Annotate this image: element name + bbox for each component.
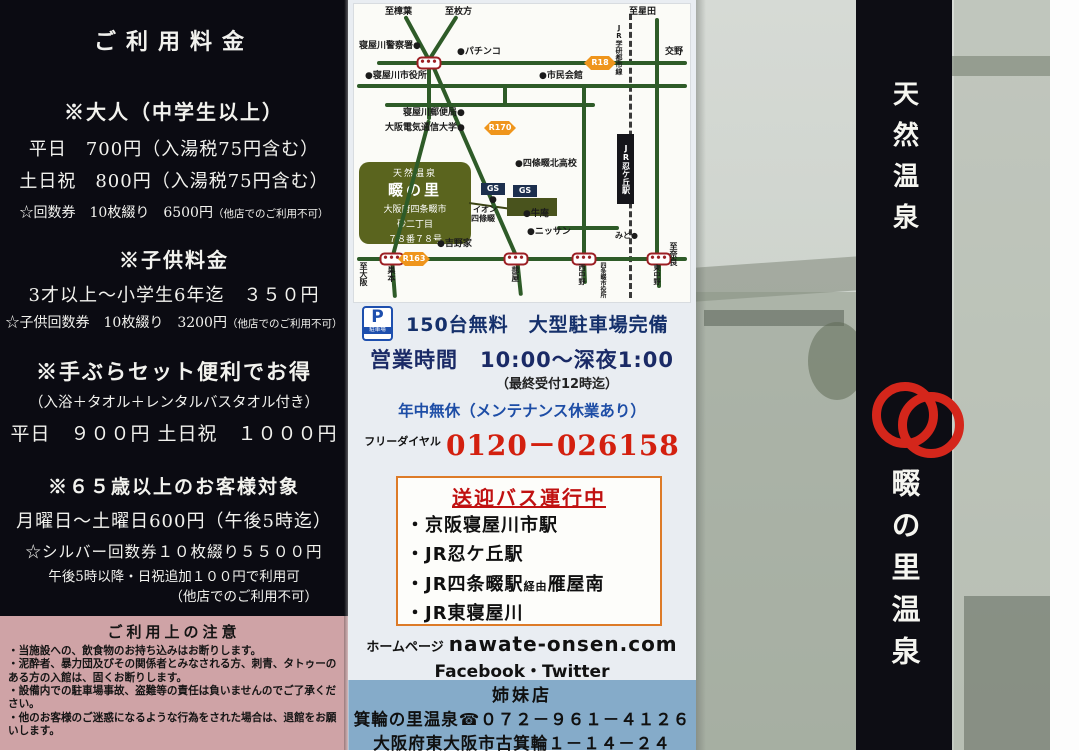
map-label: ● (489, 196, 497, 205)
map-label: 蔀屋 (511, 266, 519, 282)
map-label: ●牛庵 (523, 210, 549, 219)
adult-heading: ※大人（中学生以上） (0, 96, 348, 125)
shuttle-title: 送迎バス運行中 (406, 482, 652, 511)
homepage-url: nawate-onsen.com (449, 632, 678, 656)
map-landmark-block: GS (481, 183, 505, 195)
shuttle-bus-box: 送迎バス運行中 ・京阪寝屋川市駅 ・JR忍ケ丘駅 ・JR四条畷駅経由雁屋南 ・J… (396, 476, 662, 626)
scan-edge (1050, 0, 1079, 750)
map-canvas: 天然温泉 畷の里 大阪府四条畷市 砂二丁目 ７８番７８号 R18R170R163… (357, 6, 687, 299)
sister-store-band: 姉妹店 箕輪の里温泉☎０７２－９６１－４１２６ 大阪府東大阪市古箕輪１－１４－２… (348, 680, 696, 750)
fold-crease (344, 0, 349, 750)
map-label: 大阪電気通信大学● (385, 124, 465, 133)
map-road (582, 86, 586, 259)
map-landmark-block: GS (513, 185, 537, 197)
map-road (385, 103, 595, 107)
senior-price: 月曜日～土曜日600円（午後5時迄） (0, 507, 348, 533)
freedial-label: フリーダイヤル (364, 435, 441, 448)
map-road (357, 84, 687, 88)
map-landmark-block: JR忍ケ丘駅 (617, 134, 634, 204)
map-label: 四条畷市役所 (599, 262, 605, 298)
caution-item: ・当施設への、飲食物のお持ち込みはお断りします。 (8, 645, 340, 658)
caution-band: ご利用上の注意 ・当施設への、飲食物のお持ち込みはお断りします。 ・泥酔者、暴力… (0, 616, 348, 750)
map-label: 至樟葉 (385, 8, 412, 17)
adult-ticket-note: ☆回数券 10枚綴り 6500円（他店でのご利用不可） (0, 202, 348, 222)
last-entry-note: （最終受付12時迄） (348, 373, 696, 392)
onsen-logo-ring-icon (898, 392, 964, 458)
access-map: 天然温泉 畷の里 大阪府四条畷市 砂二丁目 ７８番７８号 R18R170R163… (354, 4, 690, 302)
building-photo-right-roof (948, 56, 1050, 76)
map-road (503, 86, 507, 105)
adult-weekend-price: 土日祝 800円（入湯税75円含む） (0, 167, 348, 193)
shuttle-stop: ・京阪寝屋川市駅 (406, 511, 652, 540)
parking-icon: P 駐車場 (362, 306, 393, 341)
map-label: 四條畷 (471, 215, 495, 223)
child-ticket-note: ☆子供回数券 10枚綴り 3200円（他店でのご利用不可） (0, 312, 348, 332)
map-label: 東中野 (653, 264, 660, 285)
map-label: みど● (615, 232, 638, 240)
map-label: ●寝屋川市役所 (365, 72, 427, 81)
brochure-scan: ご利用料金 ※大人（中学生以上） 平日 700円（入湯税75円含む） 土日祝 8… (0, 0, 1079, 750)
brand-subtitle: 天然温泉 (886, 80, 923, 244)
tebura-price: 平日 ９００円 土日祝 １０００円 (0, 419, 348, 446)
map-label: ●市民会館 (539, 72, 583, 81)
map-label: 至奈良 (669, 242, 677, 266)
map-label: 至大阪 (359, 262, 367, 286)
map-label: 寝屋川警察署● (359, 42, 421, 51)
route-number-badge: R18 (584, 56, 616, 70)
map-label: ●四條畷北高校 (515, 160, 577, 169)
senior-restriction: （他店でのご利用不可） (0, 585, 348, 605)
shuttle-stop: ・JR忍ケ丘駅 (406, 540, 652, 569)
sister-address: 大阪府東大阪市古箕輪１－１４－２４ (348, 730, 696, 754)
building-photo-entrance (964, 596, 1050, 750)
caution-item: ・設備内での駐車場事故、盗難等の責任は負いませんのでご了承ください。 (8, 685, 340, 712)
fold-shadow (696, 0, 706, 750)
callout-line: 砂二丁目 (359, 217, 471, 230)
caution-item: ・他のお客様のご迷惑になるような行為をされた場合は、退館をお願いします。 (8, 712, 340, 739)
price-panel-title: ご利用料金 (0, 0, 348, 56)
homepage-row: ホームページ nawate-onsen.com (348, 632, 696, 656)
map-label: 寝屋川郵便局● (403, 109, 465, 118)
caution-item: ・泥酔者、暴力団及びその関係者とみなされる方、刺青、タトゥーのある方の入館は、固… (8, 658, 340, 685)
adult-weekday-price: 平日 700円（入湯税75円含む） (0, 135, 348, 161)
caution-title: ご利用上の注意 (0, 616, 348, 642)
brand-name: 畷の里温泉 (883, 468, 925, 678)
sister-name-phone: 箕輪の里温泉☎０７２－９６１－４１２６ (348, 706, 696, 730)
map-label: 巣本 (387, 266, 395, 282)
map-label: 交野 (665, 48, 683, 57)
map-label: イオン (473, 206, 497, 214)
business-hours: 営業時間 10:00～深夜1:00 (348, 344, 696, 374)
parking-text: 150台無料 大型駐車場完備 (406, 310, 669, 337)
senior-extra: 午後5時以降・日祝追加１００円で利用可 (0, 565, 348, 585)
phone-row: フリーダイヤル 0120－026158 (348, 424, 696, 464)
map-label: 至星田 (629, 8, 656, 17)
title-strip: 天然温泉 畷の里温泉 (856, 0, 952, 750)
senior-ticket: ☆シルバー回数券１０枚綴り５５００円 (0, 540, 348, 562)
map-label: 西中野 (578, 264, 585, 285)
senior-heading: ※６５歳以上のお客様対象 (0, 472, 348, 499)
map-road (403, 15, 431, 61)
shuttle-stop: ・JR東寝屋川 (406, 599, 652, 628)
homepage-label: ホームページ (366, 640, 443, 655)
callout-line: 畷の里 (359, 179, 471, 200)
traffic-signal-icon (504, 253, 529, 266)
tebura-heading: ※手ぶらセット便利でお得 (0, 356, 348, 386)
map-road (655, 18, 659, 259)
map-label: ●ニッサン (527, 228, 571, 237)
traffic-signal-icon (417, 57, 442, 70)
price-panel: ご利用料金 ※大人（中学生以上） 平日 700円（入湯税75円含む） 土日祝 8… (0, 0, 348, 750)
holiday-note: 年中無休（メンテナンス休業あり） (348, 399, 696, 421)
child-price: 3才以上～小学生6年迄 ３５０円 (0, 281, 348, 307)
parking-row: P 駐車場 150台無料 大型駐車場完備 (362, 306, 669, 341)
child-heading: ※子供料金 (0, 244, 348, 273)
freedial-number: 0120－026158 (446, 429, 680, 462)
route-number-badge: R170 (484, 121, 516, 135)
map-label: JR学研都市線 (615, 24, 622, 75)
caution-list: ・当施設への、飲食物のお持ち込みはお断りします。 ・泥酔者、暴力団及びその関係者… (0, 642, 348, 738)
social-row: Facebook・Twitter (348, 657, 696, 682)
map-label: 至枚方 (445, 8, 472, 17)
map-road (427, 15, 458, 61)
map-label: ●吉野家 (437, 240, 472, 249)
sister-title: 姉妹店 (348, 680, 696, 706)
building-photo-windows (704, 310, 844, 326)
shuttle-stop: ・JR四条畷駅経由雁屋南 (406, 570, 652, 599)
cover-panel: 天然温泉 畷の里温泉 (696, 0, 1050, 750)
info-panel: 天然温泉 畷の里 大阪府四条畷市 砂二丁目 ７８番７８号 R18R170R163… (348, 0, 696, 750)
tebura-contents: （入浴＋タオル＋レンタルバスタオル付き） (0, 391, 348, 412)
map-label: ●パチンコ (457, 48, 501, 57)
callout-line: 大阪府四条畷市 (359, 202, 471, 215)
